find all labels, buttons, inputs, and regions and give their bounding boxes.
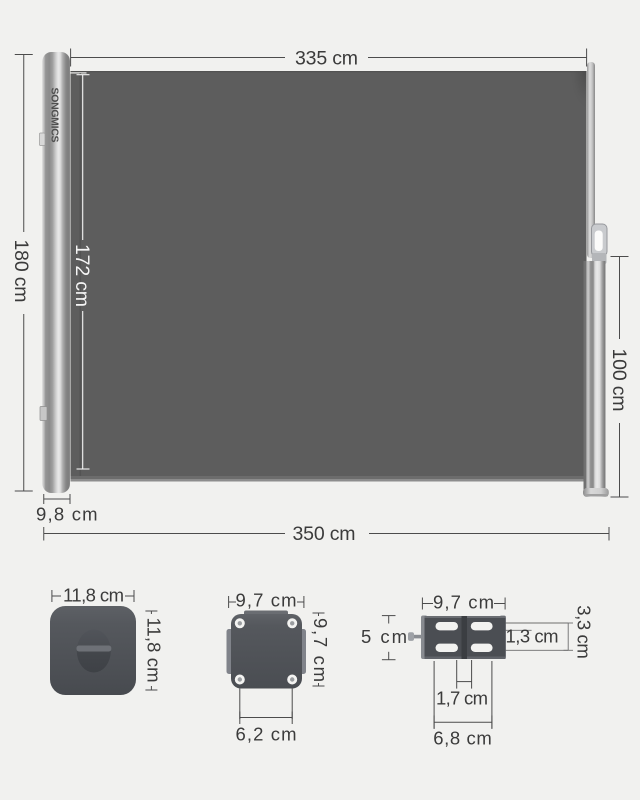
svg-text:172 cm: 172 cm — [71, 244, 93, 307]
svg-text:180 cm: 180 cm — [10, 240, 32, 303]
svg-text:9,7 cm: 9,7 cm — [310, 618, 331, 682]
svg-text:SONGMICS: SONGMICS — [48, 88, 60, 143]
svg-text:11,8 cm: 11,8 cm — [63, 585, 124, 606]
svg-text:6,8 cm: 6,8 cm — [433, 728, 492, 749]
svg-text:100 cm: 100 cm — [608, 349, 630, 412]
svg-text:9,8 cm: 9,8 cm — [36, 504, 98, 525]
svg-text:6,2 cm: 6,2 cm — [236, 724, 297, 745]
svg-text:3,3 cm: 3,3 cm — [573, 605, 594, 659]
svg-text:11,8 cm: 11,8 cm — [143, 618, 164, 683]
svg-text:5 cm: 5 cm — [361, 626, 407, 647]
svg-text:9,7 cm: 9,7 cm — [433, 592, 494, 613]
svg-text:350 cm: 350 cm — [293, 523, 356, 545]
svg-text:335 cm: 335 cm — [295, 48, 358, 70]
svg-text:1,3 cm: 1,3 cm — [506, 626, 559, 647]
svg-text:9,7 cm: 9,7 cm — [236, 590, 297, 611]
svg-text:1,7 cm: 1,7 cm — [436, 688, 488, 709]
